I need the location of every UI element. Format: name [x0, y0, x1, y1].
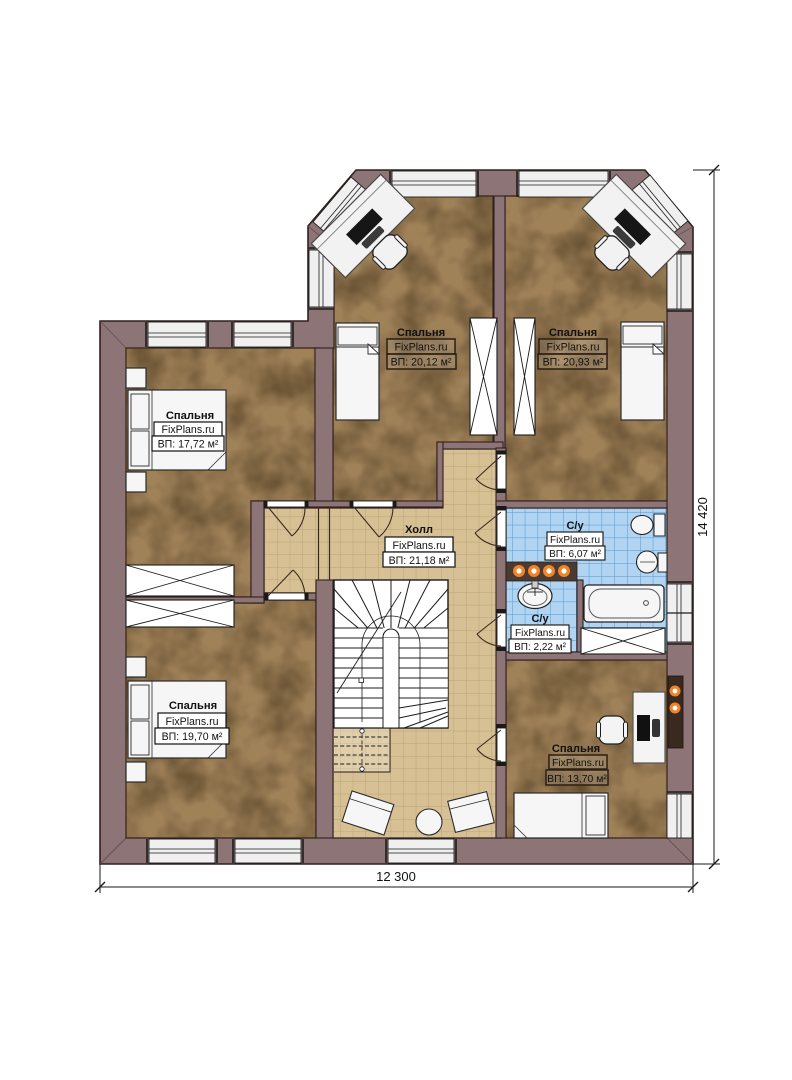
svg-text:Спальня: Спальня [166, 410, 214, 422]
svg-text:ВП: 21,18 м²: ВП: 21,18 м² [389, 555, 450, 567]
svg-text:FixPlans.ru: FixPlans.ru [162, 424, 215, 436]
svg-text:С/у: С/у [531, 613, 549, 625]
svg-text:FixPlans.ru: FixPlans.ru [547, 342, 600, 354]
svg-text:ВП: 20,12 м²: ВП: 20,12 м² [391, 357, 452, 369]
svg-text:FixPlans.ru: FixPlans.ru [393, 540, 446, 552]
svg-text:12 300: 12 300 [376, 869, 416, 884]
svg-text:FixPlans.ru: FixPlans.ru [166, 716, 219, 728]
svg-text:FixPlans.ru: FixPlans.ru [552, 758, 604, 769]
svg-text:С/у: С/у [566, 520, 584, 532]
svg-text:ВП: 17,72 м²: ВП: 17,72 м² [158, 439, 219, 451]
svg-text:ВП: 2,22 м²: ВП: 2,22 м² [514, 642, 567, 653]
svg-text:FixPlans.ru: FixPlans.ru [395, 342, 448, 354]
svg-text:FixPlans.ru: FixPlans.ru [515, 628, 565, 639]
svg-text:Холл: Холл [405, 524, 433, 536]
svg-text:Спальня: Спальня [549, 327, 597, 339]
svg-text:ВП: 20,93 м²: ВП: 20,93 м² [543, 357, 604, 369]
svg-text:ВП: 19,70 м²: ВП: 19,70 м² [162, 731, 223, 743]
svg-text:Спальня: Спальня [552, 743, 600, 755]
svg-text:FixPlans.ru: FixPlans.ru [550, 535, 600, 546]
svg-text:ВП: 13,70 м²: ВП: 13,70 м² [547, 774, 607, 785]
svg-text:ВП: 6,07 м²: ВП: 6,07 м² [549, 549, 602, 560]
svg-text:14 420: 14 420 [695, 497, 710, 537]
svg-text:Спальня: Спальня [397, 327, 445, 339]
svg-text:Спальня: Спальня [169, 700, 217, 712]
